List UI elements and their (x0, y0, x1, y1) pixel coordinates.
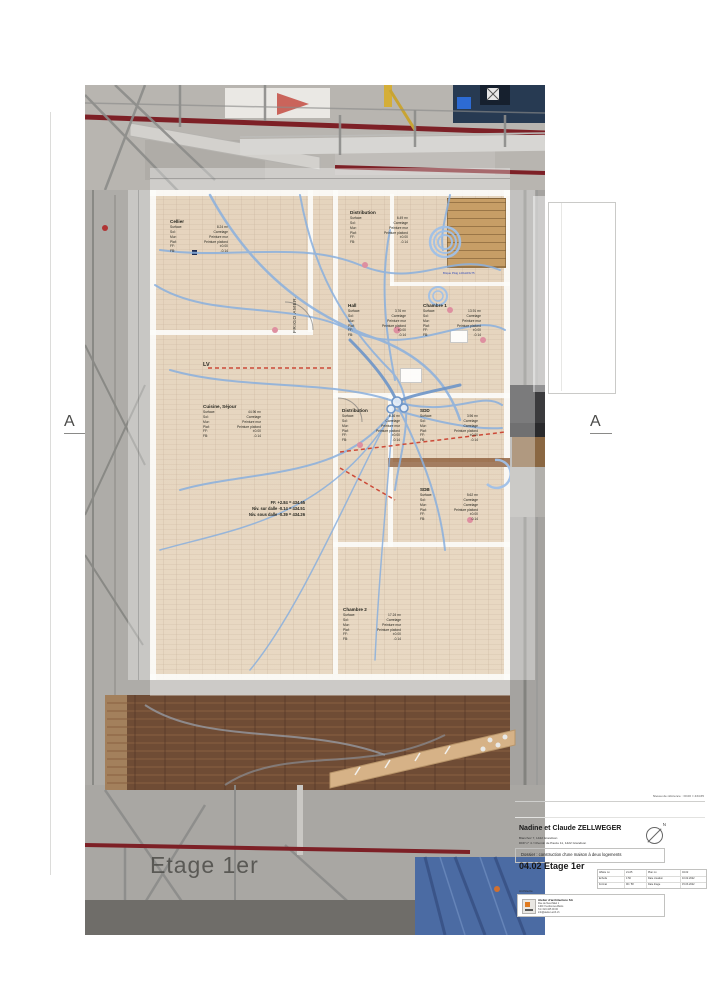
section-marker-left-bar (64, 433, 86, 434)
section-marker-left-label: A (64, 413, 75, 430)
plan-margin-wash-bottom (150, 680, 510, 696)
rebar-slab (105, 695, 510, 790)
fold-line (50, 112, 51, 875)
room-label-distribution-1: Distribution Surface:6.49 m² Sol:Carrela… (350, 210, 408, 245)
compass-icon: N (646, 827, 663, 844)
grid-cell: Date tirage (647, 882, 660, 888)
sheet-title-watermark: Etage 1er (150, 852, 259, 879)
compass-needle (647, 828, 661, 842)
white-tarp (225, 88, 330, 118)
architect-label: Architecte (519, 889, 533, 893)
floor-plan-overlay: Cellier Surface:8.24 m² Sol:Carrelage Mu… (150, 190, 510, 680)
project-description: Dossier : construction d'une maison à de… (521, 852, 621, 857)
frigo-label: FRIGO AMER. (293, 275, 298, 333)
level-annotations: FF. +2.84 = 434.65 Niv. sur dalle -0.14 … (200, 500, 305, 518)
plan-title: 04.02 Etage 1er (519, 861, 585, 871)
brique-note: Brique Plstg L40xH15x75 (443, 271, 475, 275)
architect-logo-icon (522, 899, 536, 914)
drawing-info-grid: Affaire no 21-05 Plan no 04.02 Echelle 1… (597, 869, 707, 889)
titleblock-rule-2 (515, 817, 705, 818)
grid-cell: Format (598, 882, 607, 888)
architect-box: Atelier d'architecture SA Rue de Neuchât… (517, 894, 665, 917)
plan-margin-wash-left (128, 190, 150, 680)
orange-marker (494, 886, 500, 892)
construction-site-photo: Cellier Surface:8.24 m² Sol:Carrelage Mu… (85, 85, 545, 935)
dimension-line-top (150, 178, 510, 179)
ghost-rect-wash (533, 196, 548, 392)
room-label-distribution-2: Distribution Surface:6.36 m² Sol:Carrela… (342, 408, 400, 443)
room-label-chambre-1: Chambre 1 Surface:13.91 m² Sol:Carrelage… (423, 303, 481, 338)
level-line: Niv. sous dalle -0.39 = 434.26 (200, 512, 305, 518)
lv-appliance-label: LV (203, 362, 210, 368)
room-label-chambre-2: Chambre 2 Surface:17.24 m² Sol:Carrelage… (343, 607, 401, 642)
dimension-line-left (138, 190, 139, 680)
ghost-inner-line (561, 203, 562, 391)
client-address-2: DDP n° 4 / Chemin de Pauze 11, 1422 Gran… (519, 841, 586, 845)
reference-level-note: Niveau de référence : ±0.00 = 434.65 (596, 794, 704, 798)
room-label-sdb: SDB Surface:5.62 m² Sol:Carrelage Mur:Ca… (420, 487, 478, 522)
room-label-sdd: SDD Surface:3.96 m² Sol:Carrelage Mur:Ca… (420, 408, 478, 443)
compass-north-label: N (663, 822, 666, 827)
titleblock-rule-1 (515, 801, 705, 802)
client-address-1: Blanchoz 7, 1422 Grandson (519, 836, 557, 840)
room-label-cellier: Cellier Surface:8.24 m² Sol:Carrelage Mu… (170, 219, 228, 254)
section-marker-right: A (590, 414, 612, 434)
grid-cell: 15.03.2022 (681, 882, 695, 888)
plan-margin-wash-top (150, 168, 510, 190)
room-label-hall: Hall Surface:3.76 m² Sol:Carrelage Mur:P… (348, 303, 406, 338)
red-marker-dot (102, 225, 108, 231)
post (297, 785, 303, 855)
architect-line: info@atelier-arch.ch (538, 911, 559, 914)
grid-cell: 90 / 58 (625, 882, 634, 888)
room-label-cuisine-sejour: Cuisine, Séjour Surface:44.96 m² Sol:Car… (203, 404, 261, 439)
plan-margin-wash-right (510, 190, 535, 680)
client-name: Nadine et Claude ZELLWEGER (519, 825, 621, 832)
section-marker-right-bar (590, 433, 612, 434)
section-marker-left: A (64, 414, 86, 434)
plan-extension-rect (548, 202, 616, 394)
machinery (453, 85, 545, 123)
sheet-page: A A (0, 0, 707, 1000)
section-marker-right-label: A (590, 413, 601, 430)
